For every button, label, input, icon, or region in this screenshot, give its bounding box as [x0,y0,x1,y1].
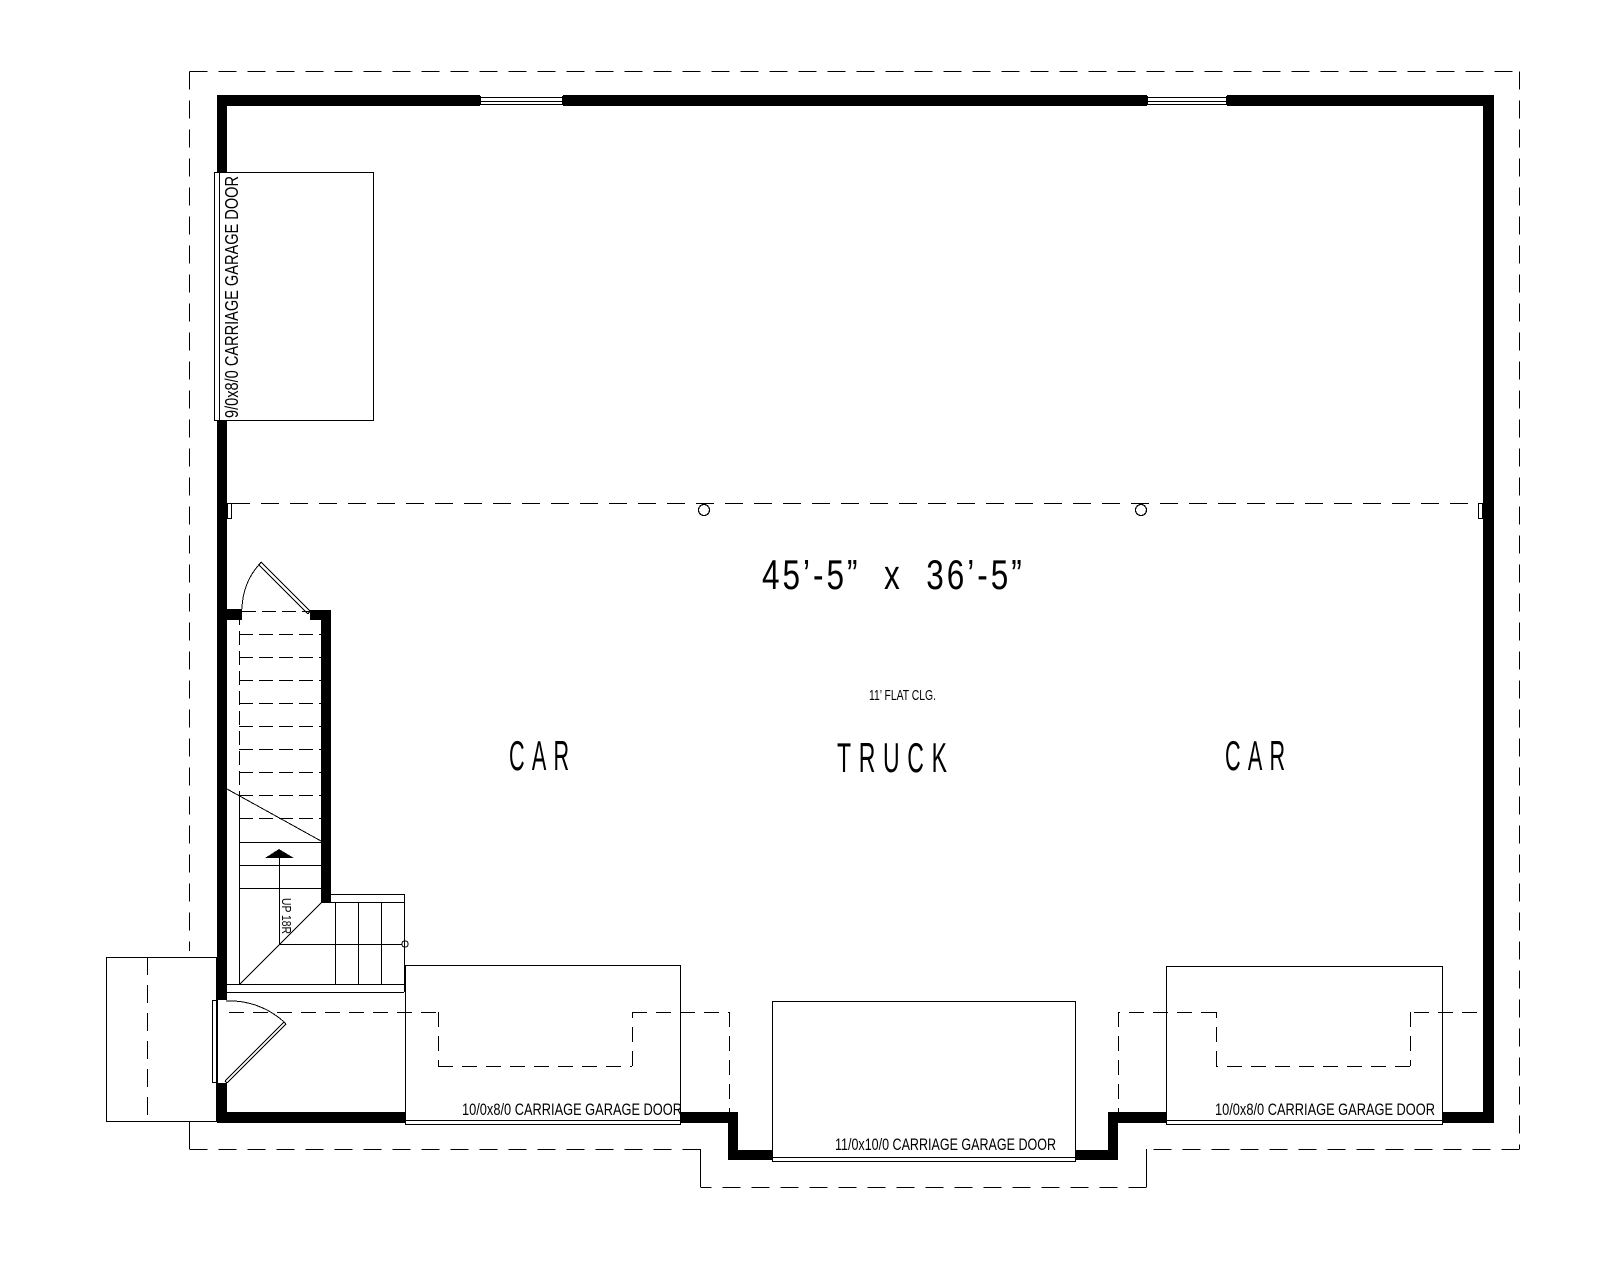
svg-text:10/0x8/0 CARRIAGE GARAGE DOOR: 10/0x8/0 CARRIAGE GARAGE DOOR [1215,1101,1435,1119]
svg-text:CAR: CAR [1225,734,1292,781]
svg-text:11’ FLAT CLG.: 11’ FLAT CLG. [869,687,936,704]
svg-text:TRUCK: TRUCK [837,735,955,782]
svg-text:9/0x8/0 CARRIAGE GARAGE DOOR: 9/0x8/0 CARRIAGE GARAGE DOOR [222,176,242,418]
svg-text:10/0x8/0 CARRIAGE GARAGE DOOR: 10/0x8/0 CARRIAGE GARAGE DOOR [462,1101,682,1119]
svg-text:UP 18R: UP 18R [279,898,294,934]
svg-text:11/0x10/0 CARRIAGE GARAGE DOOR: 11/0x10/0 CARRIAGE GARAGE DOOR [835,1136,1056,1154]
svg-text:45’-5” x 36’-5”: 45’-5” x 36’-5” [762,551,1025,599]
svg-text:CAR: CAR [509,734,576,781]
